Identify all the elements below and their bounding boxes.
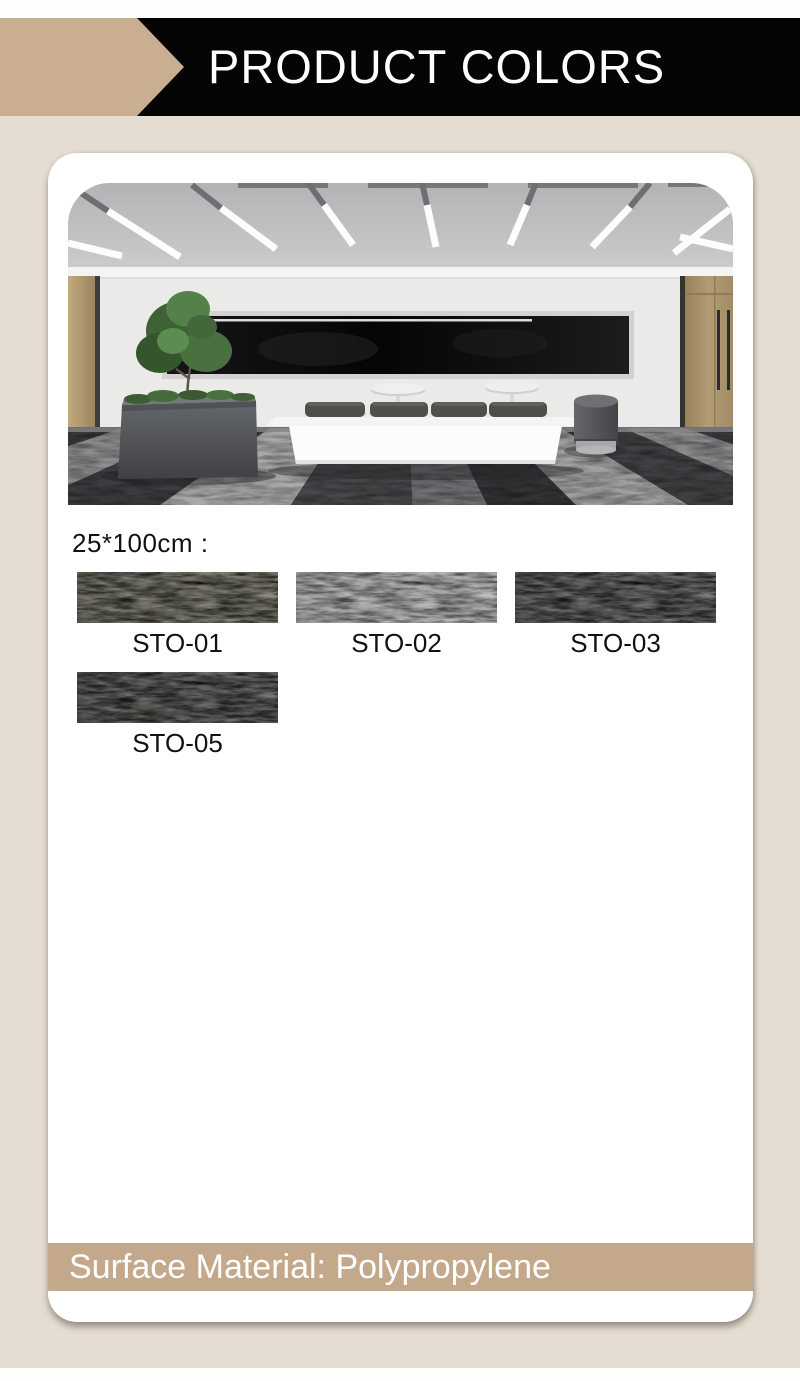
swatch-label: STO-05 [132,728,223,758]
swatch-image-sto-02 [296,572,497,623]
color-swatch-row-1: STO-01 STO-02 STO-03 [77,572,716,658]
color-swatch-row-2: STO-05 [77,672,278,758]
page-title: PRODUCT COLORS [208,18,665,116]
swatch-label: STO-03 [570,628,661,658]
right-wood-door [680,276,733,427]
swatch-item-sto-02: STO-02 [296,572,497,658]
swatch-image-sto-05 [77,672,278,723]
header-banner: PRODUCT COLORS [0,18,800,116]
material-footer-text: Surface Material: Polypropylene [48,1243,753,1291]
size-label: 25*100cm : [72,528,209,559]
product-card: 25*100cm : STO-01 STO-02 [48,153,753,1322]
media-wall-panel [162,311,634,379]
swatch-item-sto-05: STO-05 [77,672,278,758]
swatch-label: STO-02 [351,628,442,658]
swatch-item-sto-01: STO-01 [77,572,278,658]
bench-cushions [305,402,547,417]
material-footer-bar: Surface Material: Polypropylene [48,1243,753,1291]
swatch-label: STO-01 [132,628,223,658]
swatch-image-sto-03 [515,572,716,623]
left-wood-panel [68,276,100,427]
office-interior-photo [68,183,733,505]
banner-arrow-shape [0,18,184,116]
swatch-item-sto-03: STO-03 [515,572,716,658]
product-colors-page: PRODUCT COLORS [0,0,800,1381]
swatch-image-sto-01 [77,572,278,623]
room-scene [68,183,733,505]
